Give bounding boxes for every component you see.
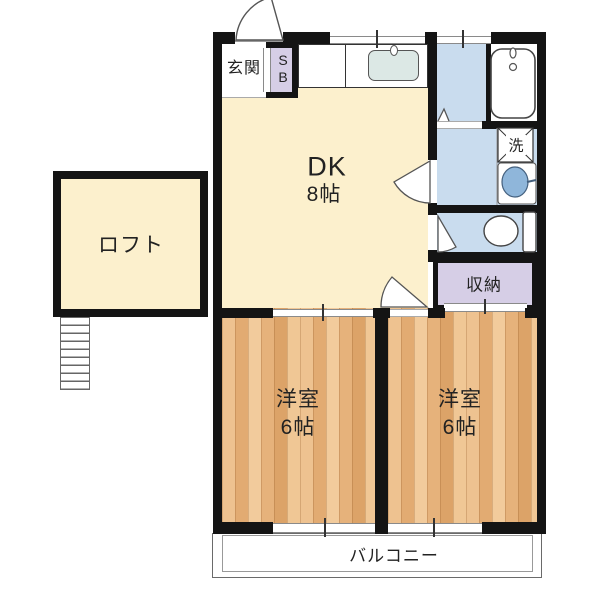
entrance-door-threshold: [235, 40, 283, 42]
bedroom-right-size: 6帖: [443, 411, 478, 441]
shoe-box-label-s: S: [278, 52, 287, 68]
wall-bath-washroom: [482, 121, 537, 129]
wall-bottom-2: [482, 522, 546, 534]
entrance-label: 玄関: [227, 54, 261, 78]
bath-window: [437, 36, 491, 44]
floor-plan: 玄関 S B DK 8帖 ロフト 洗 収納 洋室 6帖 洋室 6帖 バルコニー: [0, 0, 600, 600]
wall-toilet-storage: [428, 252, 537, 260]
wall-top-3: [425, 32, 437, 44]
wall-bottom-1: [213, 522, 273, 534]
storage-label: 収納: [466, 271, 502, 296]
kitchen-counter-divider: [345, 44, 346, 88]
bedroom-left-size: 6帖: [281, 411, 316, 441]
laundry-label: 洗: [508, 135, 523, 156]
bedroom-left-name: 洋室: [276, 383, 320, 413]
balcony-slider-left-tick: [324, 518, 326, 537]
storage-slider-tick: [484, 299, 486, 314]
room-toilet-floor: [437, 213, 537, 252]
shoe-box-label-b: B: [278, 69, 287, 85]
bedroom-right-name: 洋室: [438, 383, 482, 413]
entrance-door-arc: [236, 0, 283, 40]
balcony-slider-right-tick: [433, 518, 435, 537]
kitchen-window-tick: [376, 30, 378, 48]
wall-bedroom-divider: [375, 308, 388, 534]
wall-top-1: [213, 32, 235, 44]
wall-storage-bottom-right: [525, 308, 537, 318]
dk-bedroom-left-slider-tick: [322, 304, 324, 321]
bathroom-door-threshold: [437, 121, 482, 129]
bedroom-right-balcony-sliding-door: [388, 523, 482, 533]
wall-dk-wet-column-a: [428, 44, 437, 160]
bath-window-tick: [462, 30, 464, 48]
wall-top-2: [283, 32, 330, 44]
wall-right: [537, 32, 546, 534]
room-bath-floor: [490, 44, 537, 122]
wall-changing-bath: [486, 44, 491, 122]
bedroom-right-door-threshold: [390, 309, 428, 317]
balcony-label: バルコニー: [349, 542, 439, 567]
kitchen-faucet-icon: [390, 45, 398, 56]
wall-left: [213, 32, 222, 534]
shoe-box-sliding-door: [263, 48, 271, 92]
dk-room-size: 8帖: [307, 178, 342, 208]
room-changing-floor: [437, 44, 490, 122]
wall-storage-bottom-left: [428, 308, 445, 318]
loft-label: ロフト: [98, 229, 164, 259]
loft-ladder: [60, 317, 90, 390]
wall-dk-bedrooms-1: [213, 308, 273, 318]
wall-washroom-toilet: [428, 205, 537, 213]
